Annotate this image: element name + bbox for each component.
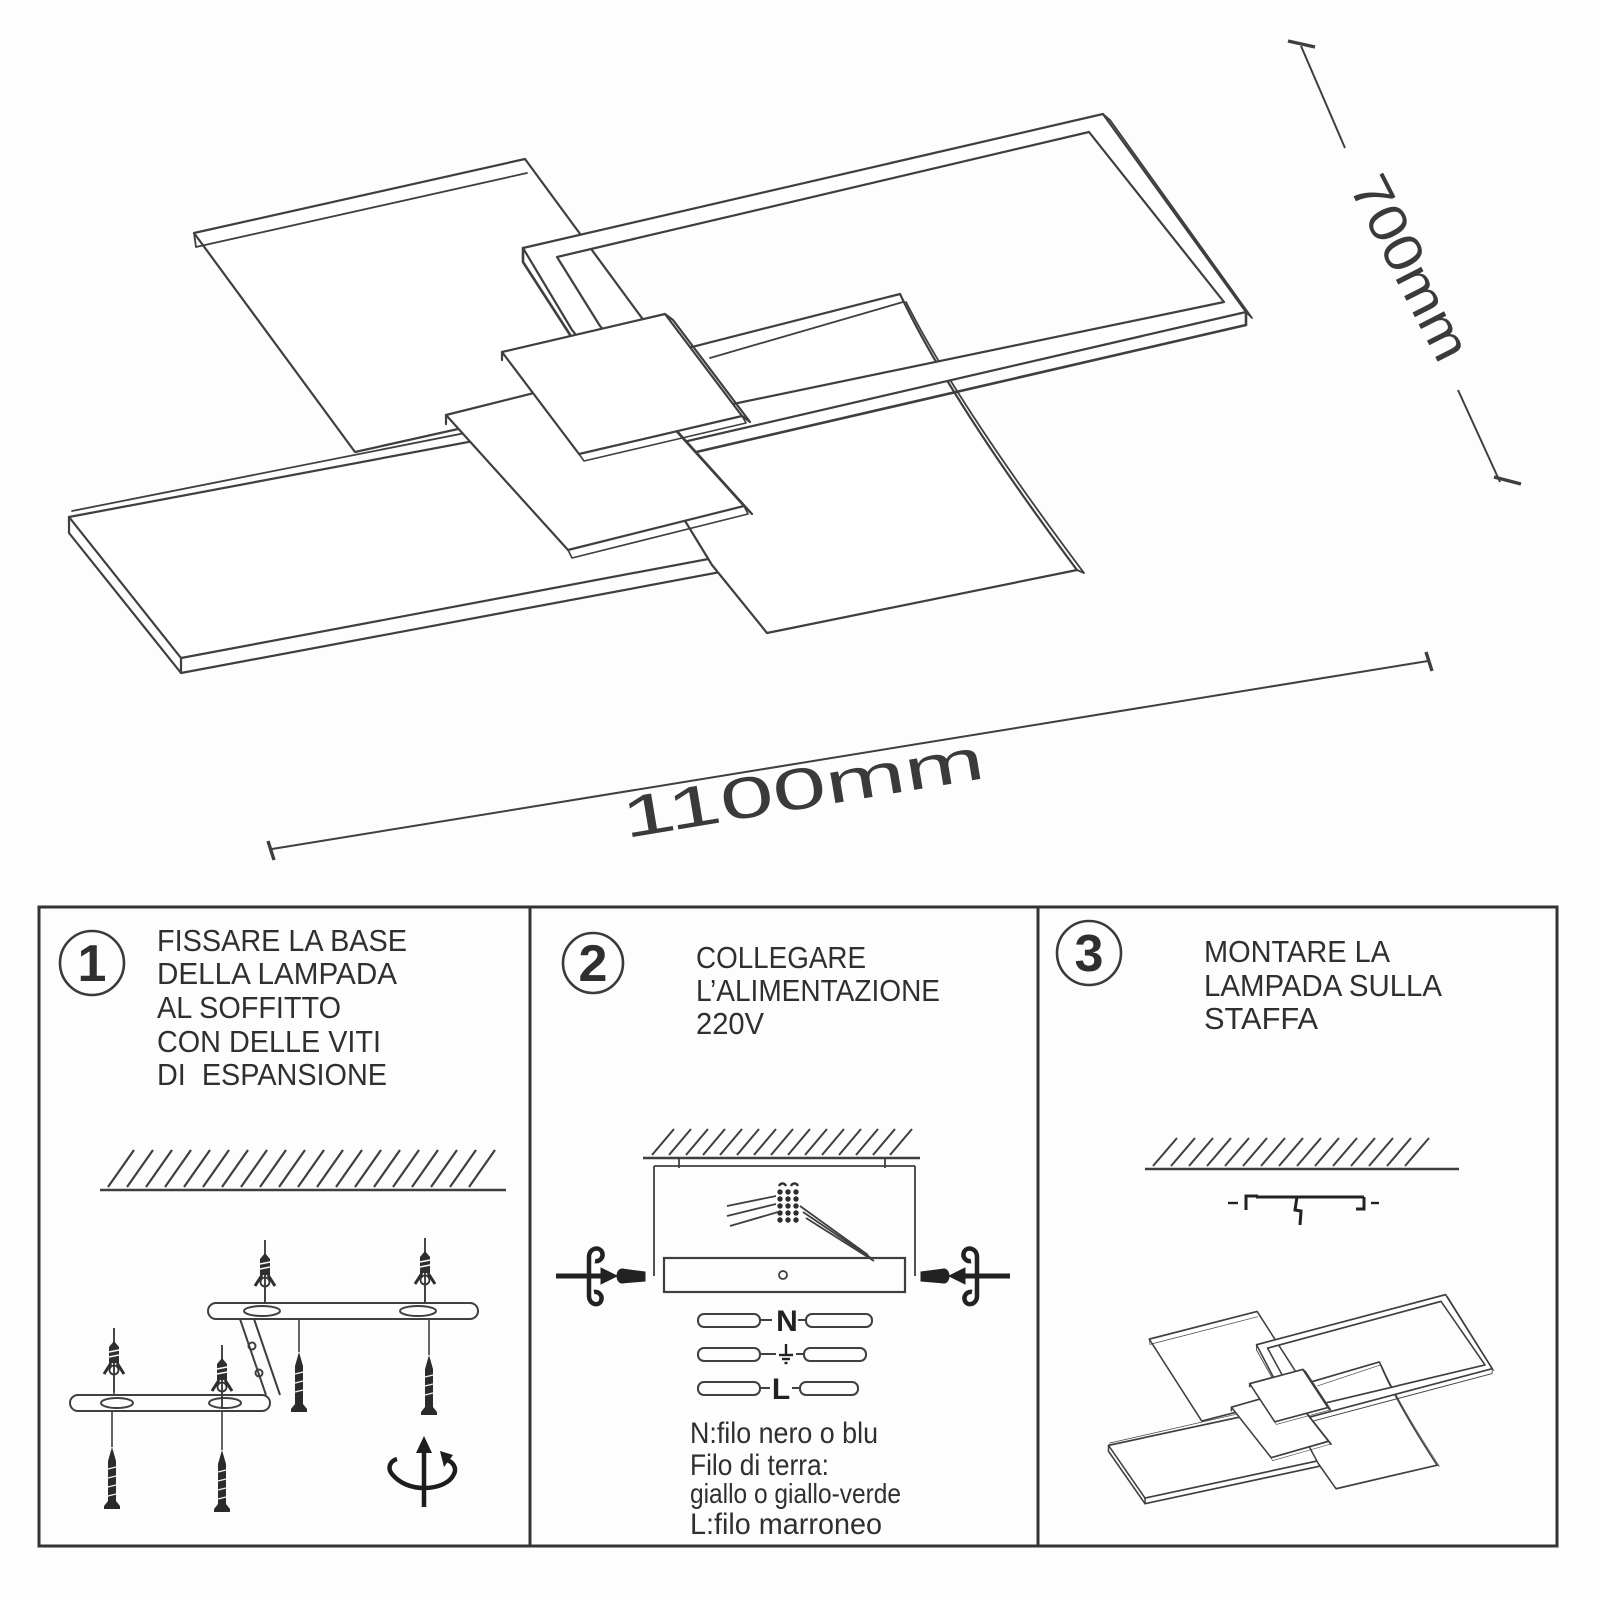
svg-text:L’ALIMENTAZIONE: L’ALIMENTAZIONE [696, 973, 940, 1008]
svg-text:CON DELLE VITI: CON DELLE VITI [157, 1024, 381, 1059]
svg-text:L:filo marroneo: L:filo marroneo [690, 1508, 882, 1541]
svg-text:DELLA LAMPADA: DELLA LAMPADA [157, 956, 397, 991]
svg-text:FISSARE LA BASE: FISSARE LA BASE [157, 923, 407, 958]
svg-text:N: N [776, 1305, 798, 1338]
svg-text:AL SOFFITTO: AL SOFFITTO [157, 990, 341, 1025]
svg-text:L: L [772, 1373, 790, 1406]
svg-text:giallo o giallo-verde: giallo o giallo-verde [690, 1478, 901, 1509]
svg-text:3: 3 [1075, 925, 1104, 983]
svg-text:N:filo nero o blu: N:filo nero o blu [690, 1417, 878, 1450]
svg-text:LAMPADA SULLA: LAMPADA SULLA [1204, 968, 1442, 1003]
svg-text:COLLEGARE: COLLEGARE [696, 940, 866, 975]
svg-text:DI ESPANSIONE: DI ESPANSIONE [157, 1057, 387, 1092]
svg-text:1: 1 [78, 935, 107, 993]
svg-text:220V: 220V [696, 1006, 764, 1041]
svg-text:MONTARE LA: MONTARE LA [1204, 934, 1390, 969]
svg-text:STAFFA: STAFFA [1204, 1001, 1318, 1036]
svg-text:2: 2 [579, 935, 608, 993]
